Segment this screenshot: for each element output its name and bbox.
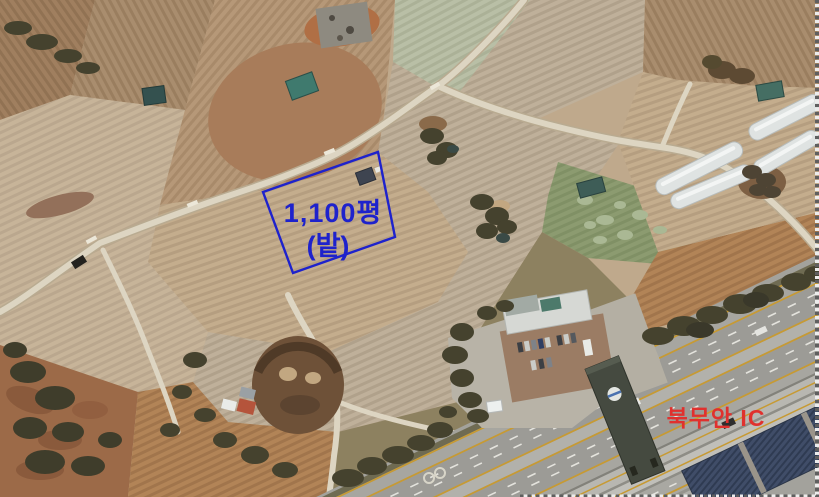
burial-mound <box>252 336 344 434</box>
parcel-land-use-label: (밭) <box>307 231 350 261</box>
parcel-area-label: 1,100평 <box>284 198 382 228</box>
guard-booth <box>486 400 502 413</box>
interchange-label: 북무안 IC <box>667 405 766 431</box>
aerial-map-canvas: 1,100평 (밭) 북무안 IC <box>0 0 819 497</box>
aerial-photo: 1,100평 (밭) 북무안 IC <box>0 0 819 497</box>
